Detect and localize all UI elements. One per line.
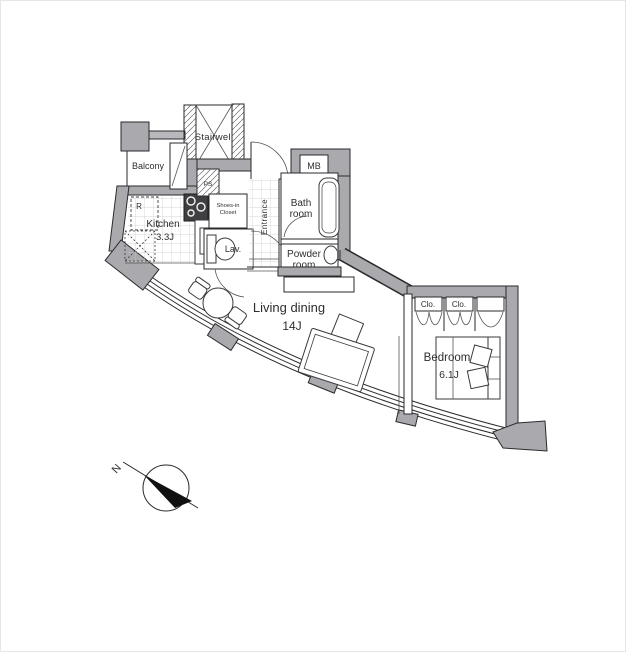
shoes-closet-label-line1: Shoes-in: [217, 203, 240, 209]
closet-door-symbol: [447, 312, 472, 325]
lav-label: Lav.: [225, 244, 241, 254]
bedroom-label: Bedroom: [424, 352, 471, 364]
stairwell: Stairwell: [184, 104, 244, 167]
shoes-closet: Shoes-in Closet: [209, 194, 247, 228]
bathtub: [319, 178, 339, 237]
bath-label-line1: Bath: [291, 198, 312, 209]
kitchen-label: Kitchen: [146, 219, 179, 230]
closet-label: Clo.: [421, 300, 435, 309]
closet-door-symbol: [416, 312, 442, 325]
compass-needle: [144, 475, 192, 508]
powder-counter: [284, 277, 354, 292]
wall-kitchen-left: [109, 186, 129, 251]
balcony-label: Balcony: [132, 161, 165, 171]
mb-label: MB: [307, 161, 321, 171]
column-bottom-right: [493, 421, 547, 451]
shoes-closet-label-line2: Closet: [220, 210, 237, 216]
refrigerator-label: R: [136, 202, 142, 211]
column-top-left: [121, 122, 149, 151]
pipe-space: PS: [197, 169, 219, 196]
pillow: [470, 345, 492, 367]
bedroom-closets: Clo. Clo.: [415, 297, 504, 331]
balcony-railing: [149, 131, 185, 139]
wall-east: [338, 176, 350, 260]
floor-plan-page: Stairwell MB Balcony R: [0, 0, 626, 652]
floor-plan-drawing: Stairwell MB Balcony R: [1, 1, 626, 652]
bath-label-line2: room: [290, 209, 313, 220]
stairwell-label: Stairwell: [195, 132, 234, 143]
pillow: [467, 367, 488, 388]
stove: [184, 194, 208, 221]
living-label: Living dining: [253, 300, 325, 315]
powder-label-line1: Powder: [287, 249, 322, 260]
powder-bottom-wall: [278, 267, 341, 276]
compass-north-label: N: [110, 462, 124, 476]
entrance-label: Entrance: [260, 199, 269, 235]
bed: [436, 337, 500, 399]
bedroom: Clo. Clo. Bedroom 6.1J: [415, 297, 504, 399]
wall-bedroom-right: [506, 286, 518, 428]
living-bedroom-partition: [399, 294, 412, 414]
compass: N: [110, 462, 198, 511]
bath-powder-wall: [281, 239, 338, 244]
closet-door-symbol: [478, 312, 503, 327]
kitchen-size-label: 3.3J: [156, 232, 174, 243]
wall-bedroom-top: [407, 286, 518, 298]
dining-table: [187, 276, 247, 329]
bedroom-size-label: 6.1J: [439, 369, 459, 381]
living-size-label: 14J: [282, 319, 301, 333]
ps-label: PS: [204, 181, 213, 188]
lavatory: Lav.: [204, 229, 253, 297]
closet-label: Clo.: [452, 300, 466, 309]
